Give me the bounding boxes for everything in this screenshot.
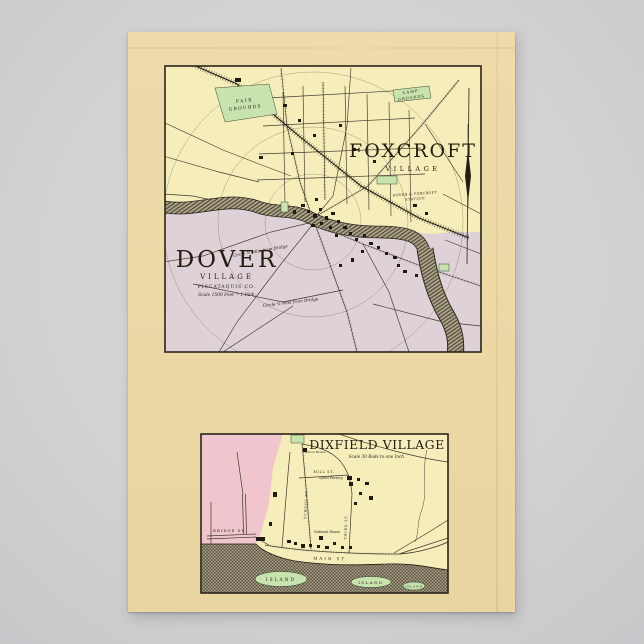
island-label: ISLAND [266, 578, 296, 583]
green-lot [377, 176, 397, 184]
dixfield-scale: Scale 30 Rods to one Inch. [349, 454, 406, 459]
bridge [256, 537, 265, 541]
foxcroft-subtitle: VILLAGE [384, 165, 440, 173]
spool-factory-label: Spool Factory [319, 476, 343, 480]
product-photo-background: FOXCROFT VILLAGE DOVER VILLAGE PISCATAQU… [0, 0, 644, 644]
bridge-st-label: BRIDGE ST. [213, 529, 247, 533]
dover-scale: Scale 1500 Feet = 1 Inch. [198, 293, 256, 298]
paper-fold-crease [128, 47, 515, 49]
school-house-label: School House [305, 450, 326, 454]
national-house-label: National House [313, 530, 340, 534]
antique-map-poster: FOXCROFT VILLAGE DOVER VILLAGE PISCATAQU… [128, 32, 515, 612]
dover-foxcroft-village-map: FOXCROFT VILLAGE DOVER VILLAGE PISCATAQU… [163, 64, 483, 354]
dixfield-title: DIXFIELD VILLAGE [309, 437, 445, 452]
dover-subtitle: VILLAGE [199, 273, 254, 281]
island-label: ISLAND [405, 585, 423, 589]
green-lot [439, 264, 449, 271]
foxcroft-title: FOXCROFT [349, 140, 477, 162]
island-label: ISLAND [358, 580, 383, 585]
paper-fold-crease-vertical [496, 32, 498, 612]
green-lot [291, 435, 304, 443]
dover-county: PISCATAQUIS CO. [198, 284, 256, 290]
dixfield-village-map: DIXFIELD VILLAGE Scale 30 Rods to one In… [199, 432, 450, 595]
mill-st-label: MILL ST. [313, 470, 334, 474]
main-st-label: MAIN ST. [313, 556, 349, 562]
green-lot [281, 202, 288, 212]
